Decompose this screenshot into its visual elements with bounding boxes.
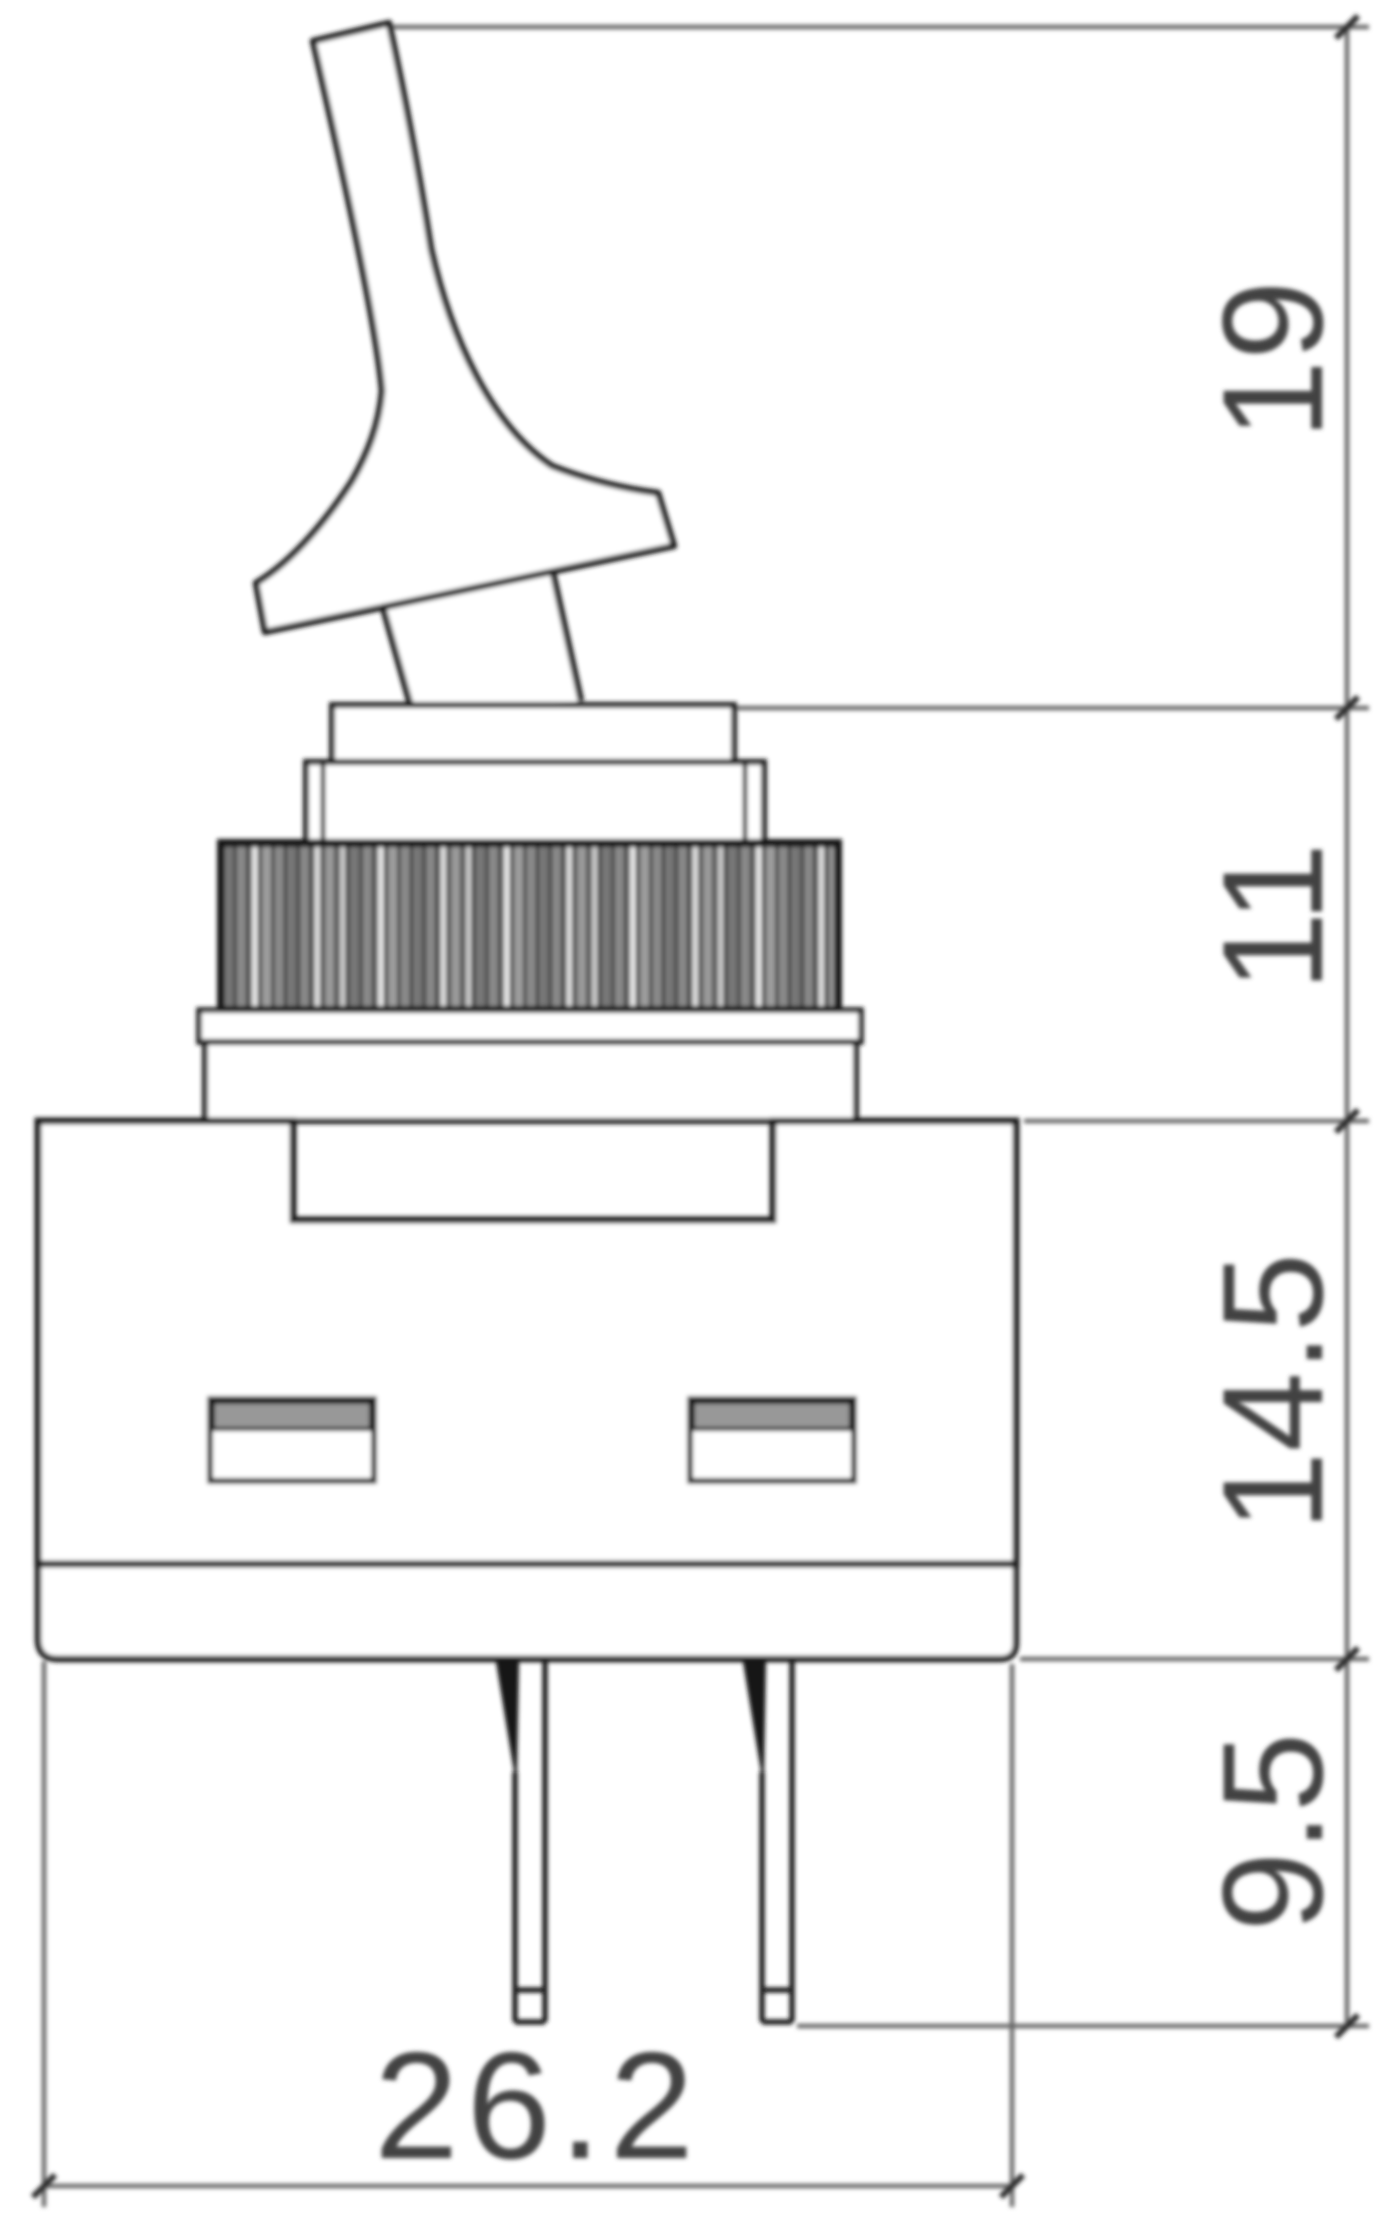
svg-text:9.5: 9.5 — [1194, 1733, 1353, 1932]
svg-text:14.5: 14.5 — [1194, 1253, 1353, 1531]
svg-text:11: 11 — [1194, 843, 1353, 991]
svg-text:19: 19 — [1194, 280, 1353, 439]
svg-text:26.2: 26.2 — [374, 2021, 702, 2191]
